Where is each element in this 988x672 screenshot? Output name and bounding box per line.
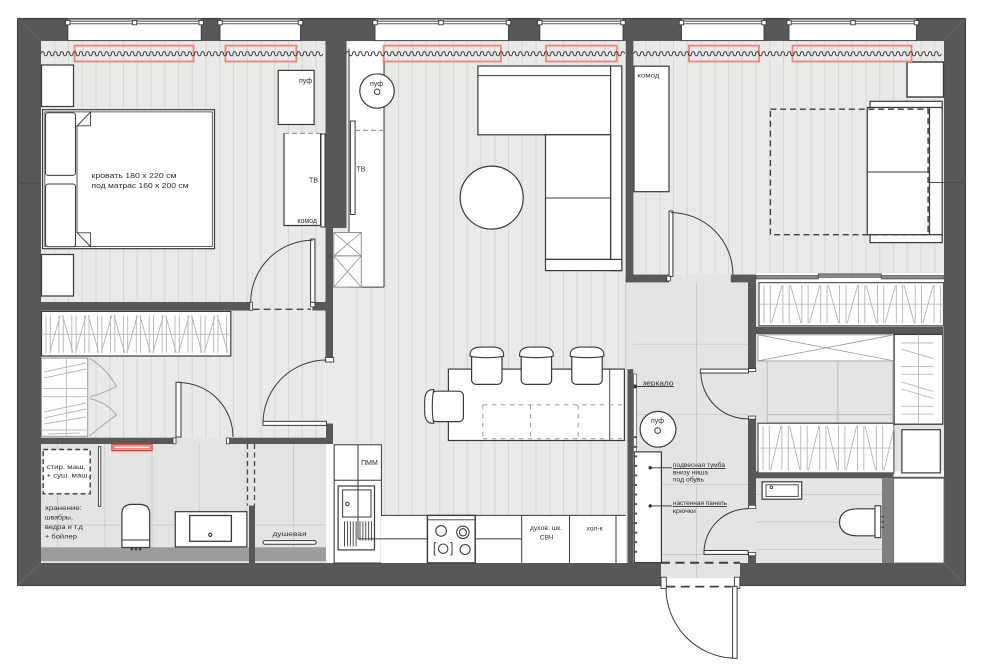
svg-text:+ бойлер: + бойлер: [45, 532, 77, 540]
svg-text:кровать 180 х 220 см: кровать 180 х 220 см: [92, 171, 177, 180]
svg-text:подвесная тумба: подвесная тумба: [673, 461, 725, 469]
svg-text:зеркало: зеркало: [643, 378, 674, 387]
svg-text:ПММ: ПММ: [361, 460, 378, 467]
svg-text:комод: комод: [637, 73, 659, 80]
svg-text:пуф: пуф: [370, 81, 383, 88]
svg-text:пуф: пуф: [651, 418, 664, 425]
svg-text:под обувь: под обувь: [673, 475, 705, 483]
svg-text:стир. маш.: стир. маш.: [47, 464, 86, 471]
svg-text:под матрас 160 х 200 см: под матрас 160 х 200 см: [92, 181, 189, 190]
svg-text:хол-к: хол-к: [586, 526, 602, 533]
svg-text:крючки: крючки: [673, 508, 696, 515]
svg-text:ТВ: ТВ: [309, 178, 318, 185]
svg-text:+ суш. маш.: + суш. маш.: [47, 473, 90, 480]
svg-text:СВЧ: СВЧ: [540, 535, 554, 542]
svg-text:духов. шк.: духов. шк.: [530, 525, 562, 532]
svg-text:ТВ: ТВ: [357, 167, 366, 174]
svg-text:хранение:: хранение:: [45, 505, 82, 512]
svg-text:комод: комод: [297, 218, 317, 225]
svg-text:швабры,: швабры,: [45, 513, 73, 521]
svg-text:душевая: душевая: [273, 531, 307, 538]
svg-text:ведра и т.д: ведра и т.д: [45, 524, 83, 531]
svg-text:пуф: пуф: [299, 78, 312, 85]
